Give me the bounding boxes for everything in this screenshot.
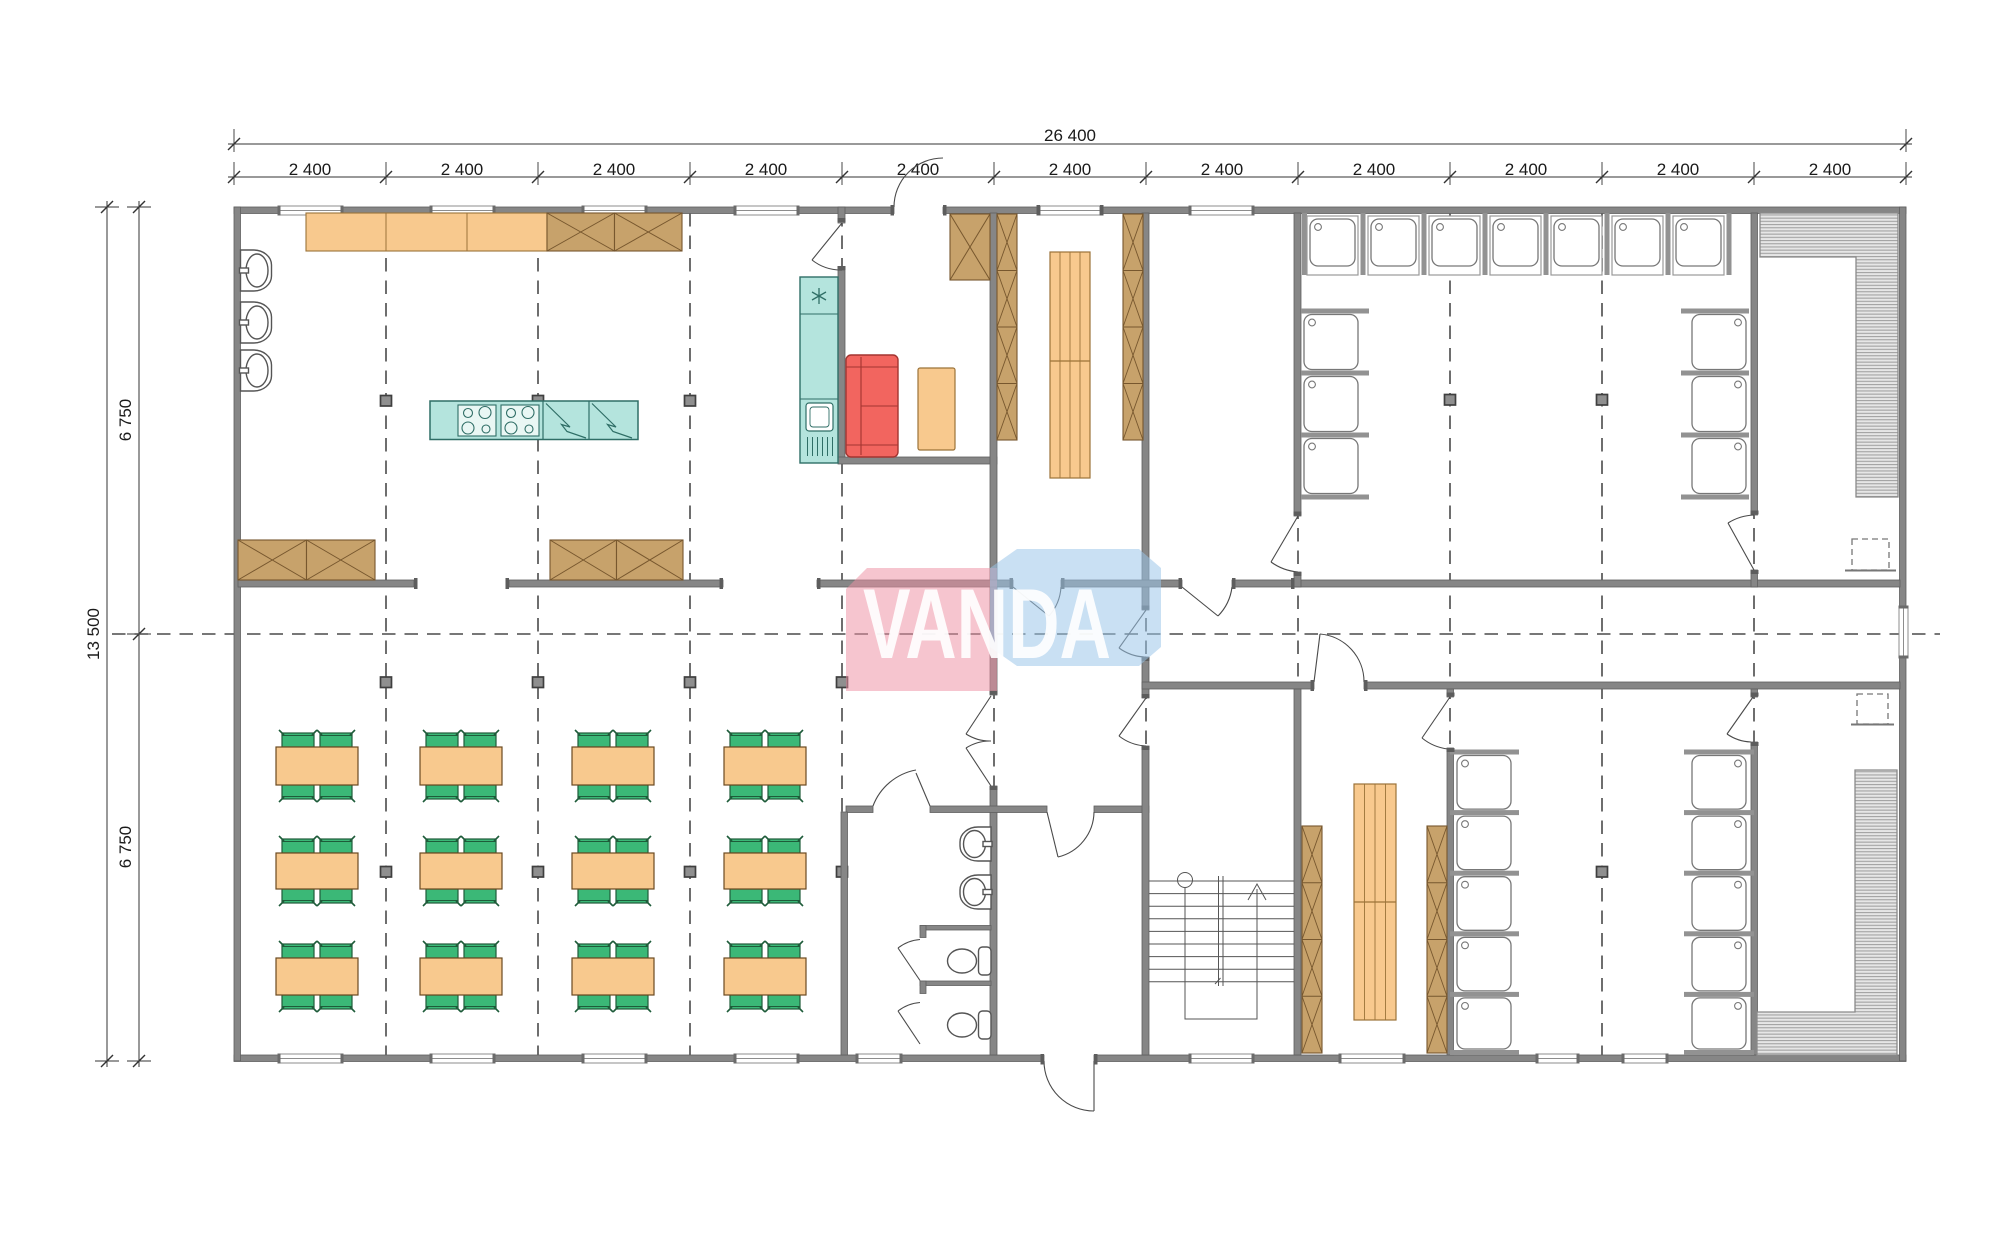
svg-text:26 400: 26 400 (1044, 126, 1096, 145)
svg-text:2 400: 2 400 (1657, 160, 1700, 179)
svg-text:2 400: 2 400 (1049, 160, 1092, 179)
svg-text:2 400: 2 400 (1505, 160, 1548, 179)
svg-text:13 500: 13 500 (84, 608, 103, 660)
svg-text:2 400: 2 400 (1201, 160, 1244, 179)
svg-text:2 400: 2 400 (745, 160, 788, 179)
svg-text:VANDA: VANDA (863, 568, 1111, 679)
svg-text:6 750: 6 750 (116, 826, 135, 869)
svg-text:2 400: 2 400 (1353, 160, 1396, 179)
svg-text:2 400: 2 400 (1809, 160, 1852, 179)
svg-text:2 400: 2 400 (897, 160, 940, 179)
svg-text:6 750: 6 750 (116, 399, 135, 442)
svg-text:2 400: 2 400 (289, 160, 332, 179)
svg-text:2 400: 2 400 (593, 160, 636, 179)
svg-text:2 400: 2 400 (441, 160, 484, 179)
